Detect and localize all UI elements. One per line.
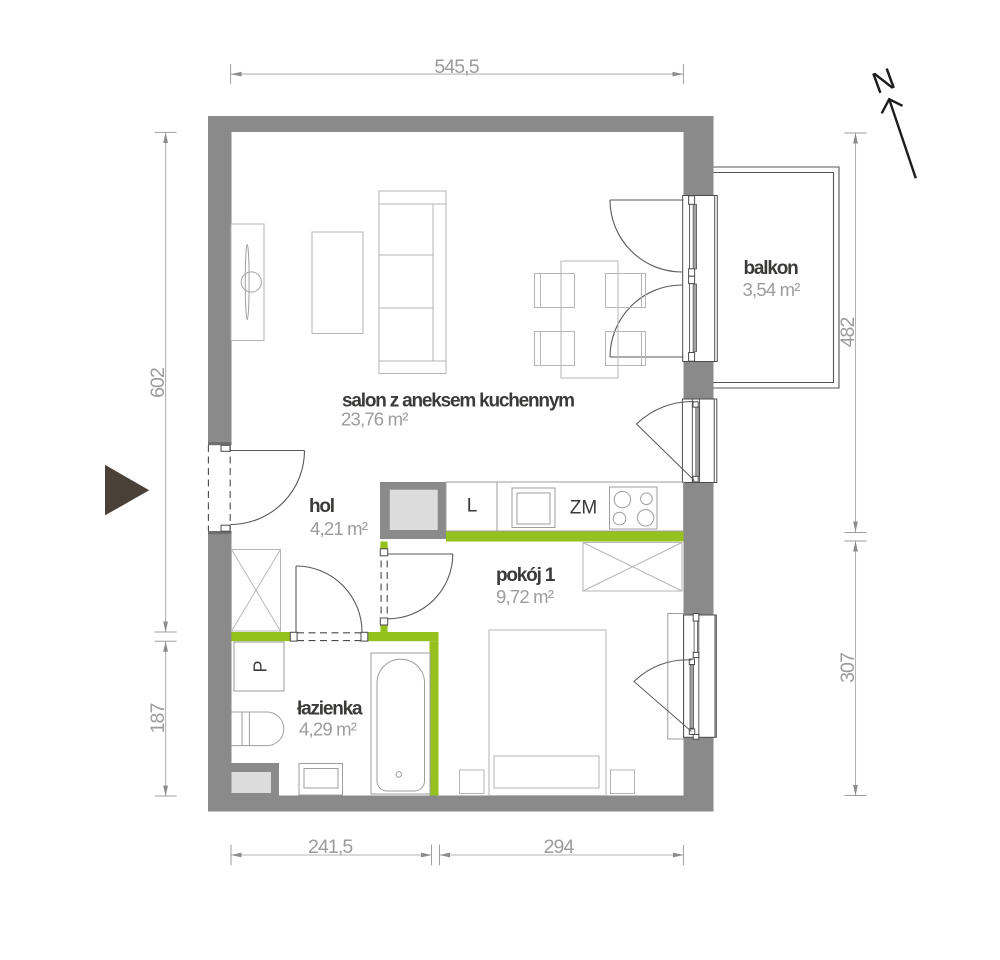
svg-text:hol: hol [309,496,334,517]
svg-text:balkon: balkon [744,258,799,279]
svg-text:L: L [467,496,478,517]
svg-text:P: P [251,660,271,672]
svg-text:ZM: ZM [570,498,597,519]
svg-text:241,5: 241,5 [308,836,353,858]
svg-text:łazienka: łazienka [297,699,363,720]
svg-text:3,54 m²: 3,54 m² [743,279,801,300]
svg-text:23,76 m²: 23,76 m² [341,409,408,430]
svg-text:4,21 m²: 4,21 m² [310,518,368,539]
svg-text:307: 307 [837,653,859,683]
svg-text:294: 294 [544,836,575,858]
svg-text:187: 187 [147,704,169,734]
svg-text:pokój 1: pokój 1 [496,565,556,586]
svg-text:482: 482 [837,318,859,348]
svg-text:602: 602 [147,368,169,398]
svg-text:9,72 m²: 9,72 m² [496,586,554,607]
svg-text:4,29 m²: 4,29 m² [299,719,357,740]
svg-text:545,5: 545,5 [434,56,479,78]
